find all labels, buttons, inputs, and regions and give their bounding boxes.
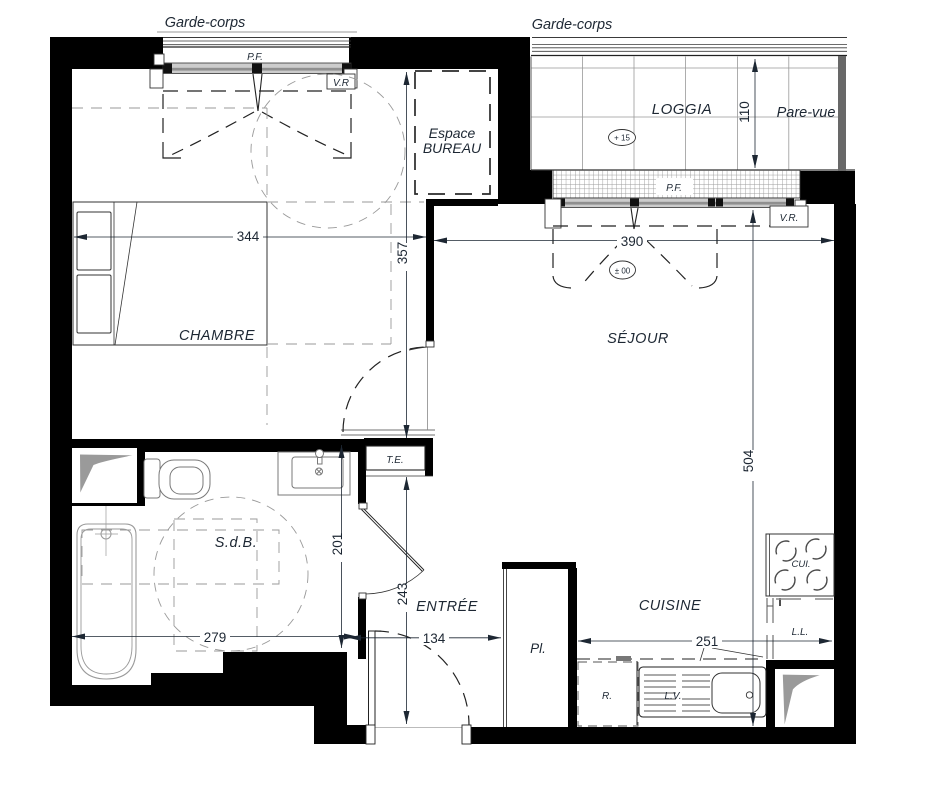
svg-text:V.R: V.R: [333, 78, 349, 89]
svg-text:SÉJOUR: SÉJOUR: [607, 330, 669, 347]
svg-text:S.d.B.: S.d.B.: [215, 535, 258, 551]
svg-text:T.E.: T.E.: [386, 455, 403, 466]
svg-text:CUI.: CUI.: [792, 559, 811, 570]
svg-text:L.L.: L.L.: [792, 627, 809, 638]
svg-text:251: 251: [696, 634, 719, 649]
svg-text:279: 279: [204, 630, 227, 645]
svg-text:Garde-corps: Garde-corps: [165, 15, 246, 31]
svg-text:201: 201: [330, 533, 345, 556]
svg-text:243: 243: [395, 583, 410, 606]
svg-text:Pare-vue: Pare-vue: [777, 105, 836, 121]
svg-text:Espace: Espace: [429, 125, 476, 141]
svg-text:504: 504: [741, 449, 756, 472]
svg-text:+ 15: + 15: [614, 134, 630, 143]
svg-text:CHAMBRE: CHAMBRE: [179, 328, 255, 344]
svg-text:344: 344: [237, 229, 260, 244]
svg-text:Pl.: Pl.: [530, 641, 546, 656]
svg-text:BUREAU: BUREAU: [423, 140, 482, 156]
svg-text:R.: R.: [602, 691, 612, 702]
svg-text:P.F.: P.F.: [247, 52, 263, 63]
svg-text:L.V.: L.V.: [664, 691, 681, 702]
svg-text:Garde-corps: Garde-corps: [532, 17, 613, 33]
svg-text:V.R.: V.R.: [780, 213, 799, 224]
svg-text:ENTRÉE: ENTRÉE: [416, 598, 478, 615]
svg-text:134: 134: [423, 631, 446, 646]
svg-text:390: 390: [621, 234, 644, 249]
svg-text:357: 357: [395, 242, 410, 265]
svg-text:110: 110: [737, 101, 752, 123]
svg-text:P.F.: P.F.: [666, 183, 682, 194]
svg-text:LOGGIA: LOGGIA: [652, 101, 713, 118]
svg-text:± 00: ± 00: [615, 267, 631, 276]
svg-text:CUISINE: CUISINE: [639, 598, 701, 614]
